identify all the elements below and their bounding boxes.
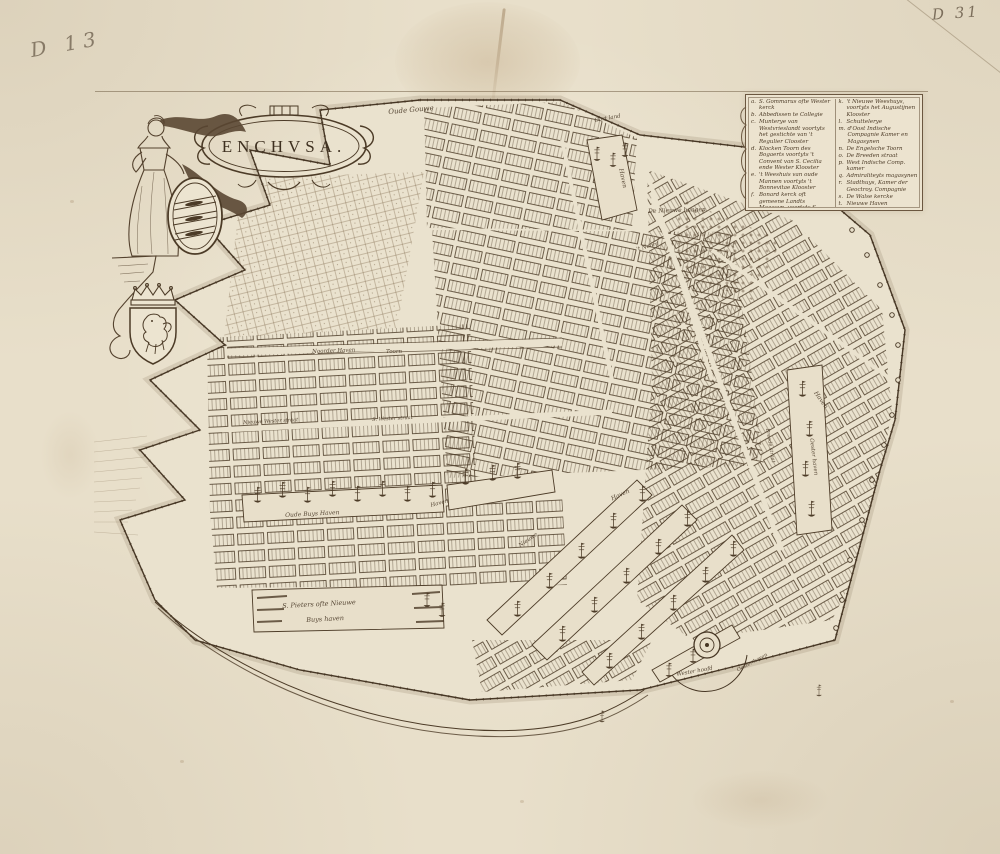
legend-entry: c.Munterye van Westvrieslandt voortyts h… [751,119,832,145]
paper-stain [40,410,100,500]
legend-column-right: k.'t Nieuwe Weeshuys, voortyts het Augus… [836,99,920,207]
legend-entry: p.West Indische Comp. kamer [839,160,920,173]
legend-entry: a.S. Gommarus ofte Wester kerck [751,99,832,112]
legend-entry: b.Abbedissen te Collegie [751,112,832,118]
legend-entry: o.De Breeden straat [839,153,920,159]
legend-entry: f.Bonard kerck oft gemeene Landts Magasy… [751,192,832,207]
paper-background: D 13 D 31 [0,0,1000,854]
fox-spot [520,800,524,803]
legend-entry: k.'t Nieuwe Weeshuys, voortyts het Augus… [839,99,920,118]
legend-panel: a.S. Gommarus ofte Wester kerck b.Abbedi… [745,94,923,211]
legend-column-left: a.S. Gommarus ofte Wester kerck b.Abbedi… [751,99,836,207]
legend-entry: r.Stadthuys, Kamer der Geoctroy. Compagn… [839,180,920,193]
map-label: Toorn [386,349,402,355]
handwritten-mark-top-left: D 13 [28,26,103,62]
enkhuizen-herring-shield [168,178,222,254]
paper-stain [690,770,830,830]
crowned-lion-arms [116,282,192,372]
garden-quarter [224,172,424,338]
fox-spot [180,760,184,763]
fox-spot [70,200,74,203]
legend-entry: e.'t Weeshuis van oude Mannen voortyts '… [751,172,832,191]
legend-entry: n.De Engelsche Toorn [839,146,920,152]
legend-entry: s.De Walse kercke [839,194,920,200]
legend-entry: t.Nieuwe Haven [839,201,920,207]
legend-entry: m.d'Oost Indische Compagnie Kamer en Mag… [839,126,920,145]
handwritten-mark-top-right: D 31 [931,2,980,23]
legend-entry: l.Schuttelerye [839,119,920,125]
fox-spot [950,700,954,703]
legend-entry: d.Klocken Toorn des Bogaerts voortyts 't… [751,146,832,172]
legend-scroll-ornament [738,105,748,201]
legend-entry: q.Admiraliteyts magasynen [839,173,920,179]
